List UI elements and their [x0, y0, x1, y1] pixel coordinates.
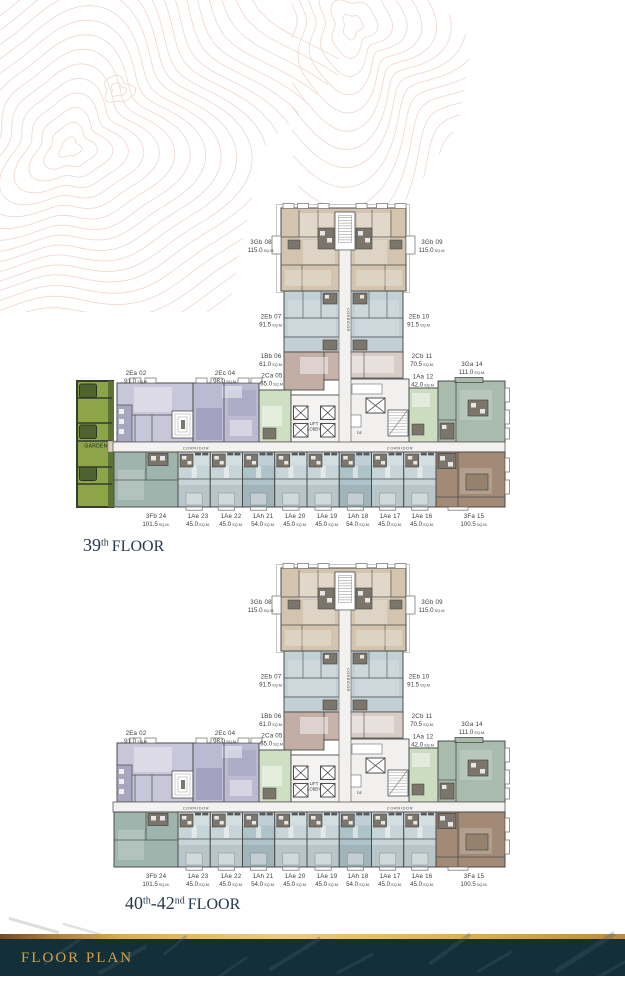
svg-text:2Cb 11: 2Cb 11 — [412, 353, 433, 360]
svg-text:CORRIDOR: CORRIDOR — [346, 308, 350, 332]
svg-text:DE: DE — [357, 791, 363, 795]
svg-text:1Ah 21: 1Ah 21 — [253, 513, 274, 520]
svg-text:91.5 SQ.M.: 91.5 SQ.M. — [259, 322, 283, 329]
svg-text:54.0 SQ.M.: 54.0 SQ.M. — [251, 881, 275, 888]
svg-text:45.0 SQ.M.: 45.0 SQ.M. — [378, 881, 402, 888]
svg-text:91.5 SQ.M.: 91.5 SQ.M. — [407, 322, 431, 329]
svg-text:100.5 SQ.M.: 100.5 SQ.M. — [460, 521, 487, 528]
svg-text:42.0 SQ.M.: 42.0 SQ.M. — [411, 742, 435, 749]
svg-text:54.0 SQ.M.: 54.0 SQ.M. — [346, 881, 370, 888]
svg-text:LOBBY: LOBBY — [307, 427, 321, 432]
svg-text:61.0 SQ.M.: 61.0 SQ.M. — [259, 361, 283, 368]
svg-text:61.0 SQ.M.: 61.0 SQ.M. — [259, 721, 283, 728]
svg-text:45.0 SQ.M.: 45.0 SQ.M. — [186, 521, 210, 528]
svg-text:1Ah 18: 1Ah 18 — [348, 513, 369, 520]
svg-text:1Ae 16: 1Ae 16 — [412, 873, 433, 880]
svg-text:1Bb 06: 1Bb 06 — [261, 713, 282, 720]
svg-text:70.5 SQ.M.: 70.5 SQ.M. — [410, 721, 434, 728]
svg-text:1Ae 20: 1Ae 20 — [285, 513, 306, 520]
svg-text:3Fb 24: 3Fb 24 — [146, 513, 167, 520]
svg-text:DE: DE — [357, 431, 363, 435]
svg-text:91.5 SQ.M.: 91.5 SQ.M. — [259, 682, 283, 689]
svg-text:2Cb 11: 2Cb 11 — [412, 713, 433, 720]
svg-text:91.0 SQ.M.: 91.0 SQ.M. — [124, 738, 148, 745]
svg-text:1Ae 22: 1Ae 22 — [221, 873, 242, 880]
svg-text:45.0 SQ.M.: 45.0 SQ.M. — [315, 521, 339, 528]
svg-text:101.5 SQ.M.: 101.5 SQ.M. — [142, 521, 169, 528]
svg-text:2Eb 10: 2Eb 10 — [409, 674, 430, 681]
svg-text:2Eb 07: 2Eb 07 — [261, 314, 282, 321]
svg-text:CORRIDOR: CORRIDOR — [183, 806, 210, 811]
svg-text:3Gb 08: 3Gb 08 — [250, 599, 272, 606]
svg-text:GARDEN: GARDEN — [84, 444, 107, 450]
svg-text:65.0 SQ.M.: 65.0 SQ.M. — [260, 381, 284, 388]
svg-text:1Ae 17: 1Ae 17 — [380, 873, 401, 880]
svg-text:3Gb 08: 3Gb 08 — [250, 239, 272, 246]
svg-text:LOBBY: LOBBY — [307, 787, 321, 792]
svg-text:2Ea 02: 2Ea 02 — [126, 730, 147, 737]
svg-text:1Ae 20: 1Ae 20 — [285, 873, 306, 880]
svg-text:45.0 SQ.M.: 45.0 SQ.M. — [219, 881, 243, 888]
svg-text:CORRIDOR: CORRIDOR — [183, 446, 210, 451]
svg-text:100.5 SQ.M.: 100.5 SQ.M. — [460, 881, 487, 888]
svg-text:3Gb 09: 3Gb 09 — [421, 239, 443, 246]
svg-text:91.5 SQ.M.: 91.5 SQ.M. — [407, 682, 431, 689]
svg-text:LIFT: LIFT — [310, 781, 319, 786]
svg-text:2Ea 02: 2Ea 02 — [126, 370, 147, 377]
svg-text:CORRIDOR: CORRIDOR — [387, 806, 414, 811]
svg-text:2Eb 10: 2Eb 10 — [409, 314, 430, 321]
svg-text:98.0 SQ.M.: 98.0 SQ.M. — [213, 378, 237, 385]
svg-text:39thFLOOR: 39thFLOOR — [83, 535, 165, 555]
svg-text:54.0 SQ.M.: 54.0 SQ.M. — [251, 521, 275, 528]
svg-text:2Ca 05: 2Ca 05 — [261, 373, 283, 380]
svg-text:115.0 SQ.M.: 115.0 SQ.M. — [248, 247, 275, 254]
svg-text:54.0 SQ.M.: 54.0 SQ.M. — [346, 521, 370, 528]
svg-text:45.0 SQ.M.: 45.0 SQ.M. — [283, 881, 307, 888]
svg-text:2Ec 04: 2Ec 04 — [215, 370, 236, 377]
svg-text:2Ec 04: 2Ec 04 — [215, 730, 236, 737]
svg-text:CORRIDOR: CORRIDOR — [387, 446, 414, 451]
svg-text:45.0 SQ.M.: 45.0 SQ.M. — [219, 521, 243, 528]
svg-text:111.0 SQ.M.: 111.0 SQ.M. — [459, 729, 485, 736]
svg-text:3Fa 15: 3Fa 15 — [464, 873, 485, 880]
svg-text:91.0 SQ.M.: 91.0 SQ.M. — [124, 378, 148, 385]
svg-text:3Fb 24: 3Fb 24 — [146, 873, 167, 880]
svg-text:1Ae 19: 1Ae 19 — [317, 513, 338, 520]
svg-text:3Fa 15: 3Fa 15 — [464, 513, 485, 520]
svg-text:115.0 SQ.M.: 115.0 SQ.M. — [419, 247, 446, 254]
svg-text:45.0 SQ.M.: 45.0 SQ.M. — [410, 521, 434, 528]
svg-text:CORRIDOR: CORRIDOR — [346, 668, 350, 692]
svg-text:2Eb 07: 2Eb 07 — [261, 674, 282, 681]
svg-text:1Aa 12: 1Aa 12 — [413, 374, 434, 381]
svg-text:45.0 SQ.M.: 45.0 SQ.M. — [315, 881, 339, 888]
svg-text:115.0 SQ.M.: 115.0 SQ.M. — [248, 607, 275, 614]
svg-text:1Ah 18: 1Ah 18 — [348, 873, 369, 880]
svg-text:3Ga 14: 3Ga 14 — [461, 361, 483, 368]
svg-text:115.0 SQ.M.: 115.0 SQ.M. — [419, 607, 446, 614]
svg-text:45.0 SQ.M.: 45.0 SQ.M. — [283, 521, 307, 528]
svg-text:111.0 SQ.M.: 111.0 SQ.M. — [459, 369, 485, 376]
svg-text:1Ae 23: 1Ae 23 — [188, 513, 209, 520]
svg-text:70.5 SQ.M.: 70.5 SQ.M. — [410, 361, 434, 368]
svg-text:45.0 SQ.M.: 45.0 SQ.M. — [378, 521, 402, 528]
svg-text:45.0 SQ.M.: 45.0 SQ.M. — [410, 881, 434, 888]
svg-text:1Ae 22: 1Ae 22 — [221, 513, 242, 520]
svg-text:FLOOR PLAN: FLOOR PLAN — [21, 950, 133, 966]
svg-text:2Ca 05: 2Ca 05 — [261, 733, 283, 740]
svg-text:45.0 SQ.M.: 45.0 SQ.M. — [186, 881, 210, 888]
svg-text:1Ae 16: 1Ae 16 — [412, 513, 433, 520]
svg-text:65.0 SQ.M.: 65.0 SQ.M. — [260, 741, 284, 748]
svg-text:1Ae 19: 1Ae 19 — [317, 873, 338, 880]
svg-text:98.0 SQ.M.: 98.0 SQ.M. — [213, 738, 237, 745]
svg-text:101.5 SQ.M.: 101.5 SQ.M. — [142, 881, 169, 888]
svg-text:3Gb 09: 3Gb 09 — [421, 599, 443, 606]
svg-text:42.0 SQ.M.: 42.0 SQ.M. — [411, 382, 435, 389]
svg-text:3Ga 14: 3Ga 14 — [461, 721, 483, 728]
svg-text:1Ae 17: 1Ae 17 — [380, 513, 401, 520]
svg-text:LIFT: LIFT — [310, 421, 319, 426]
svg-text:1Bb 06: 1Bb 06 — [261, 353, 282, 360]
svg-text:1Aa 12: 1Aa 12 — [413, 734, 434, 741]
svg-text:1Ah 21: 1Ah 21 — [253, 873, 274, 880]
svg-text:1Ae 23: 1Ae 23 — [188, 873, 209, 880]
